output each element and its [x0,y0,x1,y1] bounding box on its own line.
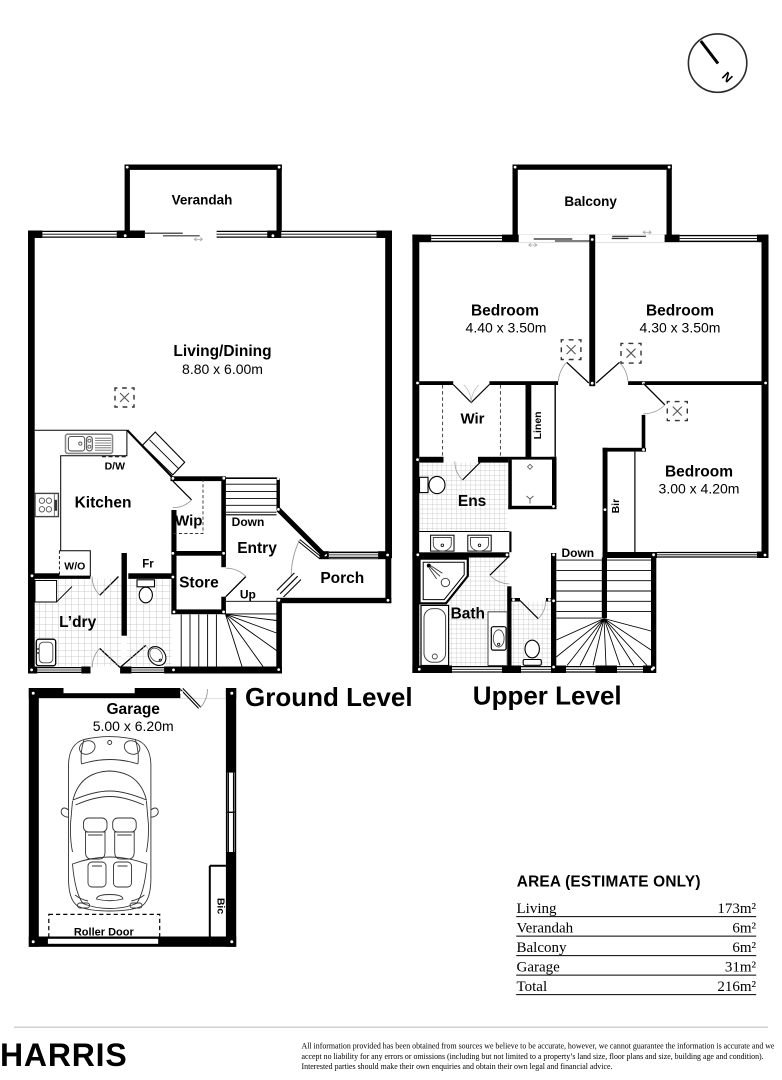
svg-text:All information provided has b: All information provided has been obtain… [302,1041,775,1050]
svg-text:Down: Down [561,546,594,560]
svg-text:4.30 x 3.50m: 4.30 x 3.50m [640,320,721,336]
svg-text:Roller Door: Roller Door [74,927,135,939]
svg-text:Wir: Wir [460,411,484,428]
svg-text:Bedroom: Bedroom [665,464,733,481]
svg-text:AREA (ESTIMATE ONLY): AREA (ESTIMATE ONLY) [517,873,701,890]
svg-text:8.80 x 6.00m: 8.80 x 6.00m [182,361,263,377]
svg-text:31m²: 31m² [725,960,757,976]
svg-text:6m²: 6m² [732,940,756,956]
svg-text:Bedroom: Bedroom [646,303,714,320]
svg-text:3.00 x 4.20m: 3.00 x 4.20m [659,481,740,497]
svg-text:173m²: 173m² [717,901,756,917]
svg-text:Living/Dining: Living/Dining [173,343,271,360]
svg-text:Bedroom: Bedroom [471,303,539,320]
svg-text:Up: Up [240,588,256,602]
svg-text:4.40 x 3.50m: 4.40 x 3.50m [466,320,547,336]
svg-text:216m²: 216m² [717,979,756,995]
svg-text:Interested parties should make: Interested parties should make their own… [302,1062,613,1071]
svg-text:Store: Store [179,575,219,592]
svg-text:Kitchen: Kitchen [75,495,132,512]
svg-text:Balcony: Balcony [517,940,567,956]
svg-text:5.00 x 6.20m: 5.00 x 6.20m [93,718,174,734]
svg-text:Balcony: Balcony [564,194,617,209]
svg-text:accept no liability for any er: accept no liability for any errors or om… [302,1052,764,1061]
svg-text:L’dry: L’dry [59,614,96,631]
svg-text:W/O: W/O [64,561,85,573]
svg-text:Entry: Entry [237,540,277,557]
svg-text:Verandah: Verandah [172,193,233,208]
svg-text:Fr: Fr [142,559,154,571]
svg-text:Bath: Bath [451,605,485,622]
svg-text:Living: Living [517,901,557,917]
svg-text:Linen: Linen [532,411,544,439]
svg-text:Garage: Garage [106,701,160,718]
svg-text:Verandah: Verandah [517,921,574,937]
svg-text:HARRIS: HARRIS [0,1037,127,1073]
svg-text:Bic: Bic [215,898,227,915]
svg-text:Total: Total [517,979,548,995]
svg-text:Ens: Ens [458,493,486,510]
svg-text:6m²: 6m² [732,921,756,937]
svg-text:Down: Down [232,515,265,529]
svg-text:Upper Level: Upper Level [473,681,622,711]
svg-text:D/W: D/W [105,461,126,473]
svg-text:Wip: Wip [175,513,202,530]
svg-text:Garage: Garage [517,960,561,976]
svg-text:Porch: Porch [320,570,364,587]
svg-text:Bir: Bir [610,499,622,514]
svg-text:Ground Level: Ground Level [245,682,413,712]
